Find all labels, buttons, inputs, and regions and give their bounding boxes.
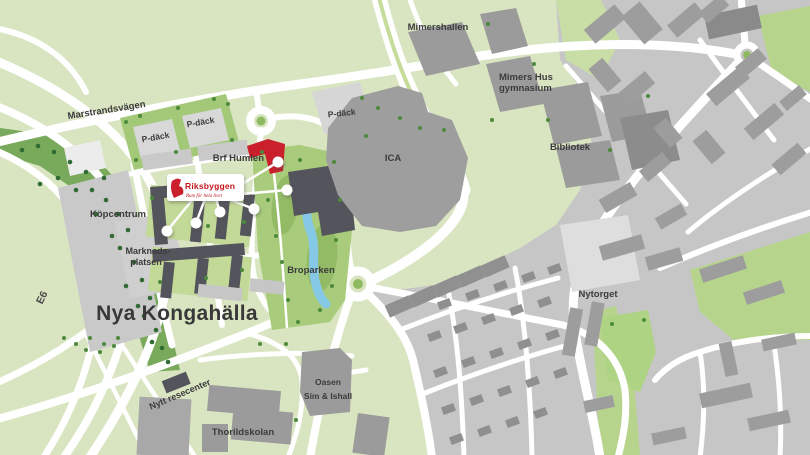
label-bibliotek: Bibliotek bbox=[550, 142, 591, 153]
label-brf-humlen: Brf Humlen bbox=[213, 153, 264, 164]
riksbyggen-brand-text: Riksbyggen bbox=[185, 181, 235, 191]
label-mimers-hus-1: Mimers Hus bbox=[499, 72, 553, 83]
label-mimershallen: Mimershallen bbox=[408, 22, 469, 33]
riksbyggen-tagline-text: Rum för hela livet bbox=[185, 194, 223, 199]
label-thorildskolan: Thorildskolan bbox=[212, 427, 274, 438]
label-nya-kongahalla: Nya Kongahälla bbox=[96, 302, 258, 325]
label-kopcentrum: Köpcentrum bbox=[90, 209, 146, 220]
label-broparken: Broparken bbox=[287, 265, 335, 276]
label-oasen-1: Oasen bbox=[315, 377, 341, 387]
label-ica: ICA bbox=[385, 153, 402, 164]
label-marknadsplatsen-1: Marknads- bbox=[125, 246, 170, 256]
label-marknadsplatsen-2: platsen bbox=[130, 257, 162, 267]
map-svg: Riksbyggen Rum för hela livet Marstrands… bbox=[0, 0, 810, 455]
label-mimers-hus-2: gymnasium bbox=[499, 83, 552, 94]
label-nytorget: Nytorget bbox=[578, 289, 618, 300]
label-oasen-2: Sim & Ishall bbox=[304, 391, 352, 401]
map-canvas: Riksbyggen Rum för hela livet Marstrands… bbox=[0, 0, 810, 455]
